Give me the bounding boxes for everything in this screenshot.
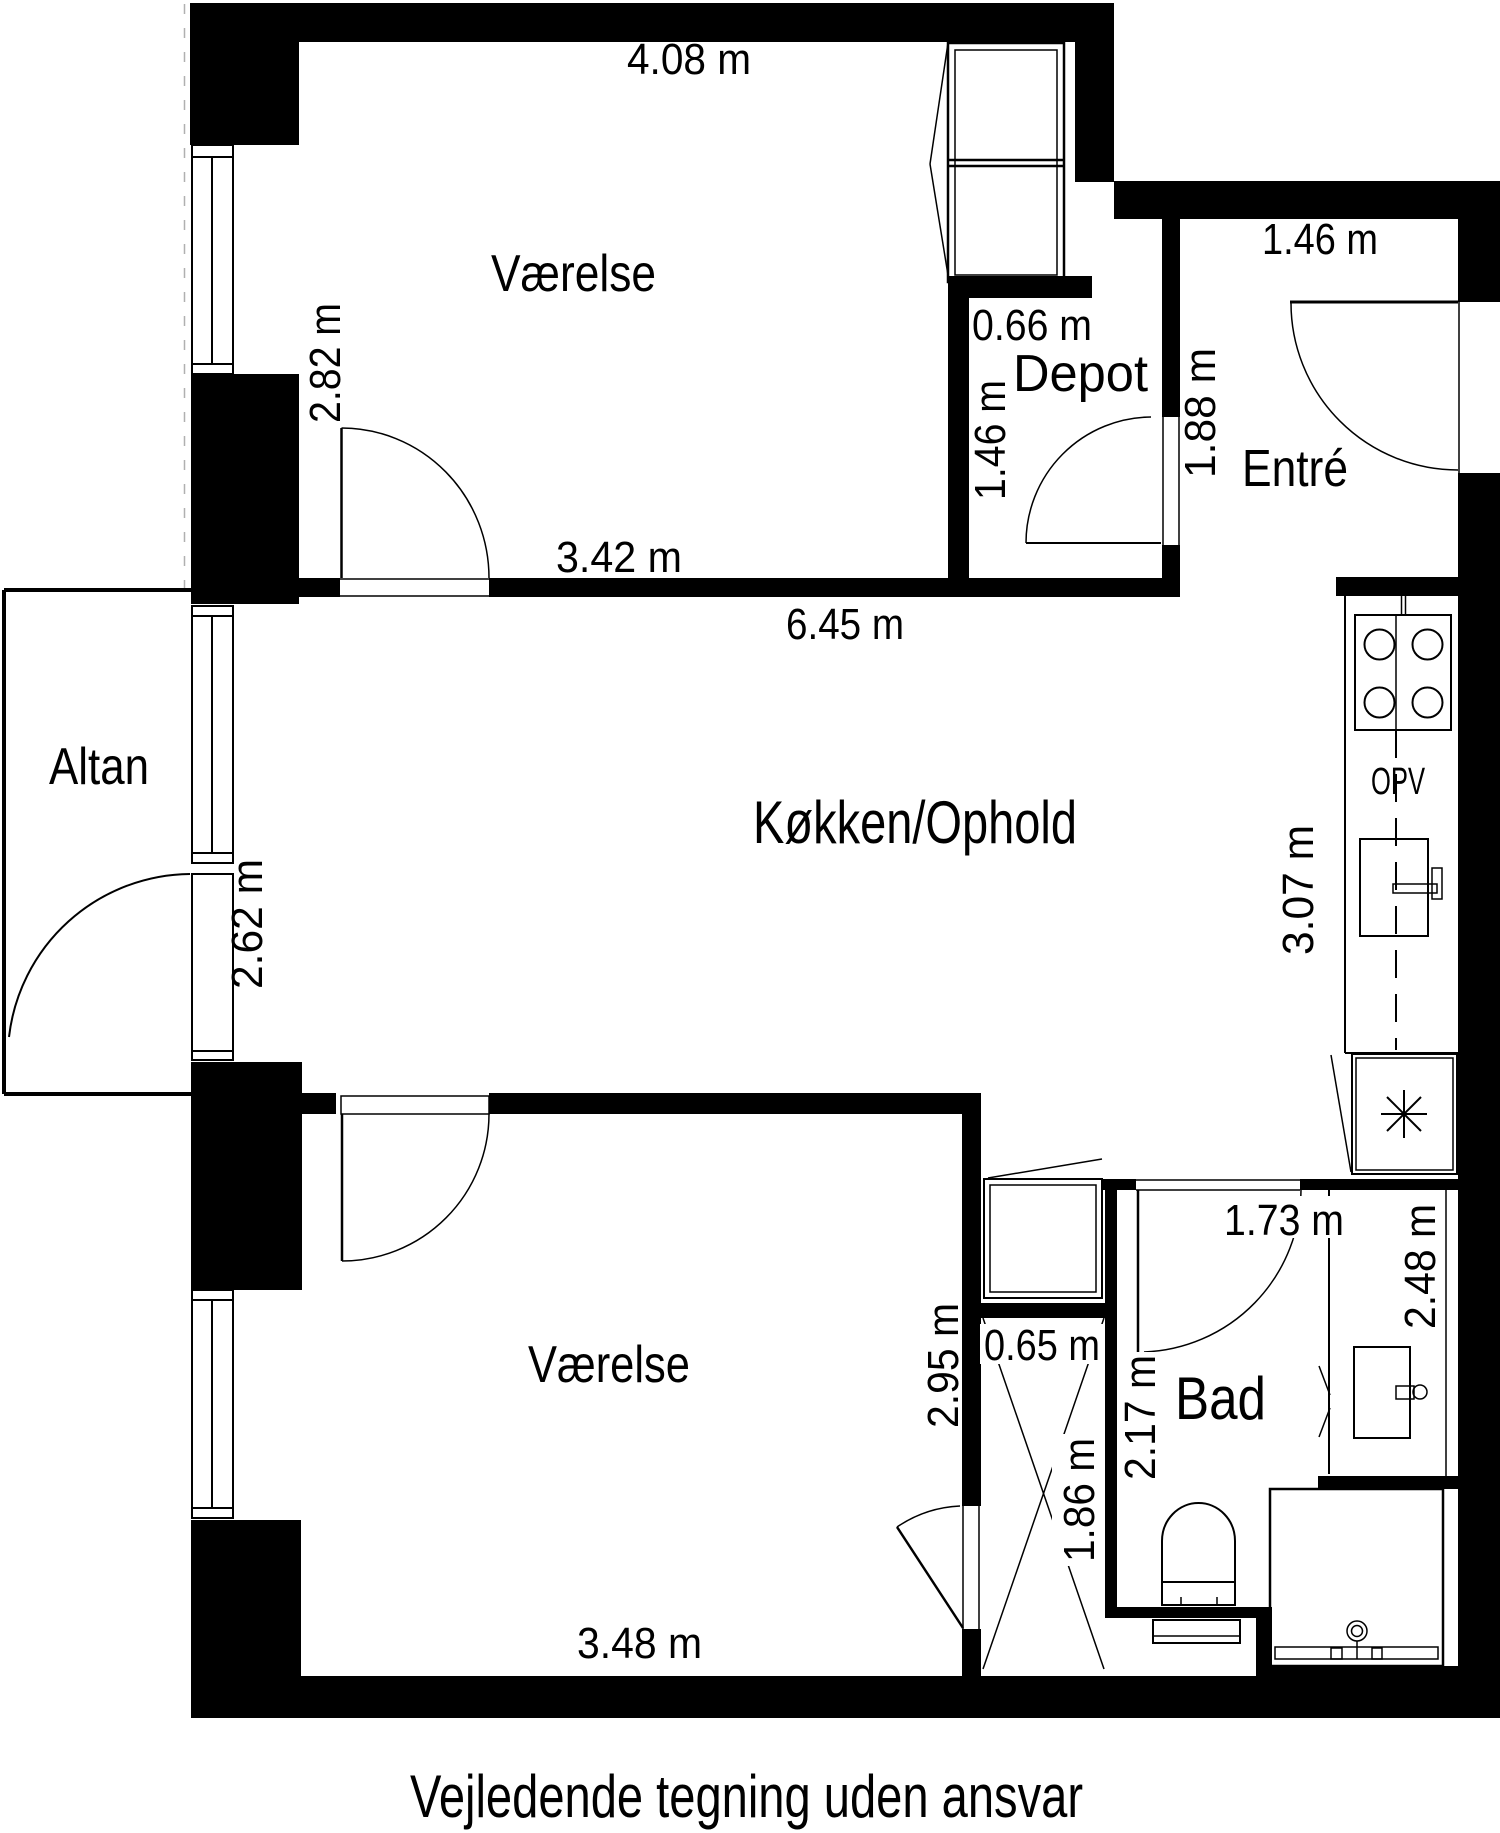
svg-text:1.46 m: 1.46 m <box>1262 215 1378 264</box>
svg-text:Værelse: Værelse <box>491 245 656 303</box>
svg-text:3.48 m: 3.48 m <box>577 1619 702 1668</box>
svg-text:1.88 m: 1.88 m <box>1176 348 1225 478</box>
svg-text:Altan: Altan <box>49 738 149 796</box>
svg-text:0.65 m: 0.65 m <box>984 1321 1100 1370</box>
svg-text:Entré: Entré <box>1242 440 1348 498</box>
svg-text:0.66 m: 0.66 m <box>972 301 1092 350</box>
svg-text:1.86 m: 1.86 m <box>1055 1438 1104 1562</box>
svg-text:OPV: OPV <box>1371 761 1425 803</box>
svg-text:Værelse: Værelse <box>528 1336 690 1394</box>
svg-text:2.48 m: 2.48 m <box>1396 1204 1445 1329</box>
svg-text:Vejledende tegning uden ansvar: Vejledende tegning uden ansvar <box>410 1763 1083 1830</box>
svg-text:2.62 m: 2.62 m <box>223 859 272 989</box>
svg-text:3.42 m: 3.42 m <box>556 533 682 582</box>
svg-text:3.07 m: 3.07 m <box>1274 825 1323 955</box>
svg-text:2.95 m: 2.95 m <box>919 1303 968 1428</box>
svg-text:1.73 m: 1.73 m <box>1224 1196 1344 1245</box>
svg-text:Køkken/Ophold: Køkken/Ophold <box>753 789 1077 856</box>
svg-text:2.17 m: 2.17 m <box>1116 1355 1165 1480</box>
svg-text:Bad: Bad <box>1175 1365 1266 1432</box>
svg-text:Depot: Depot <box>1013 345 1149 403</box>
svg-text:6.45 m: 6.45 m <box>786 600 904 649</box>
svg-text:2.82 m: 2.82 m <box>301 303 350 423</box>
svg-text:4.08 m: 4.08 m <box>627 35 751 84</box>
svg-text:1.46 m: 1.46 m <box>966 380 1015 500</box>
